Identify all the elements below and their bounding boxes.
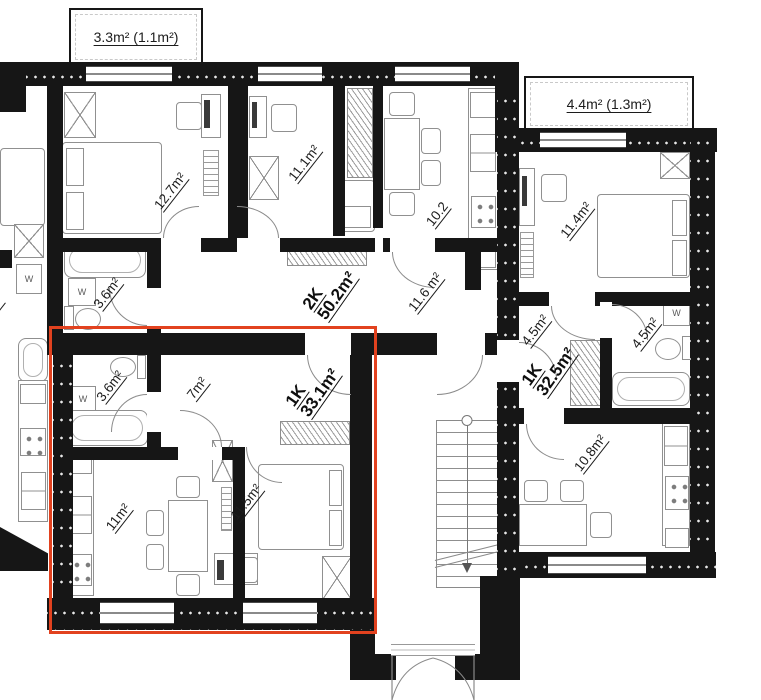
door-opening [437,333,485,355]
window [395,66,470,82]
pillow [66,192,84,230]
stove [471,196,496,228]
entrance-door [391,656,475,700]
wardrobe [660,152,690,179]
radiator [203,150,219,196]
stove [665,476,689,510]
wall [61,238,147,252]
door-opening [600,302,612,338]
staircase [436,420,498,588]
room-label-kitchen-2k: 10.2 [423,199,451,229]
chair [524,480,548,502]
stair-arrow [462,563,472,573]
door-opening [390,238,435,252]
dining-table [519,504,587,546]
entrance-threshold [391,644,475,656]
door-arc [237,206,279,238]
closet-hatch [570,340,602,406]
kitchen-sink [21,472,46,510]
bathtub [612,372,690,406]
kitchen-sink [664,426,688,466]
door-opening [147,288,161,326]
door-opening [237,238,280,252]
stair-direction-line [467,423,468,563]
pillow [342,206,371,228]
wardrobe [14,224,44,258]
wall [0,250,12,268]
bathtub-inner [617,377,685,401]
wall [465,252,481,290]
stair-start-circle [462,415,473,426]
chair [389,92,415,116]
room-label-room-2k: 11.1m² [285,142,322,184]
pillow [672,200,687,236]
fridge [470,92,496,118]
wall [0,527,48,571]
pillow [672,240,687,276]
highlighted-apartment-outline [49,326,377,634]
door-arc [551,306,595,340]
bathtub-inner [23,343,43,377]
door-opening [524,408,564,424]
monitor [522,176,527,206]
monitor [204,100,210,128]
wall [0,62,26,112]
room-label-bedroom-1k-right: 11.4m² [557,199,594,241]
wall [373,86,383,228]
stove [20,428,46,456]
chair [176,102,202,130]
room-label-kitchen-1k-right: 10.8m² [571,432,609,474]
kitchen-sink [470,134,496,172]
chair [421,128,441,154]
door-opening [161,238,201,252]
wall [201,238,237,252]
pillow [66,148,84,186]
window [86,66,172,82]
door-arc [437,355,483,395]
toilet [655,338,681,360]
cabinet [665,528,689,548]
window [548,556,646,574]
balcony-right-label: 4.4m² (1.3m²) [567,96,652,112]
wall [280,238,375,252]
chair [271,104,297,132]
wall [333,86,345,236]
chair [560,480,584,502]
monitor [252,102,257,128]
bathtub [18,338,48,382]
door-arc [163,206,199,238]
chair [389,192,415,216]
room-label-neighbor-partial: 2m² [0,293,5,321]
chair [421,160,441,186]
washing-machine: W [16,264,42,294]
balcony-top-label: 3.3m² (1.1m²) [94,29,179,45]
wardrobe [249,156,279,200]
door-opening [497,340,519,382]
closet-hatch [347,88,373,178]
wardrobe [64,92,96,138]
wall [47,86,63,333]
chair [590,512,612,538]
cabinet [20,384,46,404]
door-opening [549,292,595,306]
chair [541,174,567,202]
radiator [520,232,534,278]
floor-plan: 3.3m² (1.1m²) 4.4m² (1.3m²) [0,0,761,700]
wall [497,86,519,578]
apartment-label-2k: 2K 50.2m² [300,258,361,323]
dining-table [384,118,420,190]
door-arc [526,424,564,460]
wall [690,128,715,578]
bed [0,148,45,226]
window [540,132,626,148]
window [258,66,322,82]
